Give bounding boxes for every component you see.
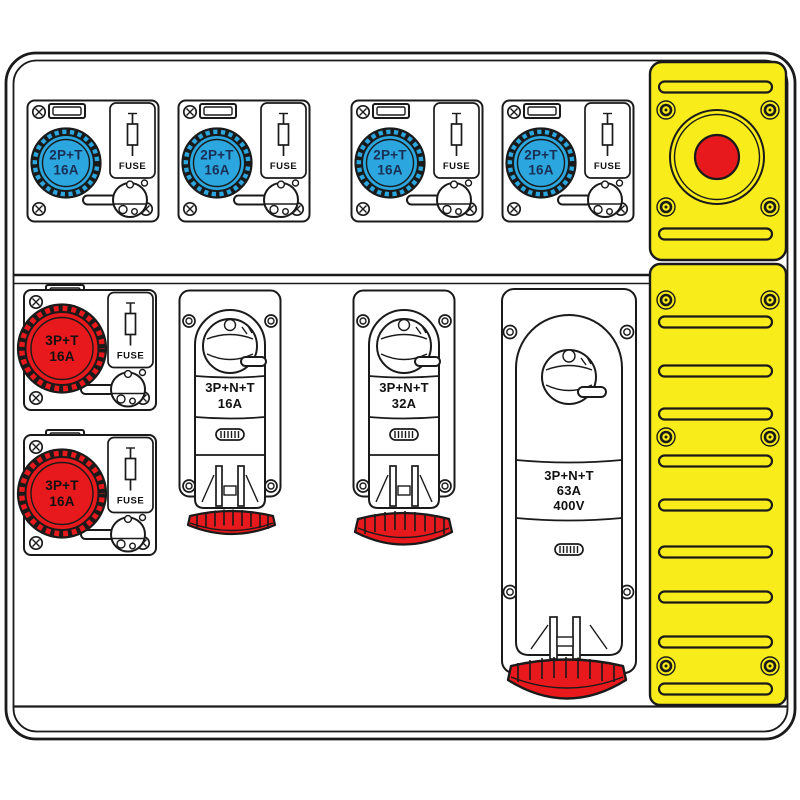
socket-type-label: 3P+T	[45, 333, 79, 348]
fuse-holder[interactable]: FUSE	[108, 438, 153, 513]
indicator-dot	[140, 370, 146, 376]
socket-rating-label: 63A	[557, 483, 582, 498]
socket-type-label: 3P+N+T	[205, 380, 255, 395]
fuse-holder[interactable]: FUSE	[261, 103, 306, 178]
yellow-side-panel	[645, 58, 791, 710]
socket-unit-blue-4[interactable]: FUSE 2P+T 16A	[501, 99, 635, 223]
socket-unit-vertical-63a[interactable]: 3P+N+T 63A 400V	[500, 287, 638, 719]
socket-type-label: 2P+T	[49, 148, 83, 163]
vent-grille	[216, 429, 244, 440]
socket-type-label: 3P+N+T	[544, 468, 594, 483]
socket-rating-label: 16A	[49, 349, 74, 364]
socket-rating-label: 16A	[528, 163, 553, 178]
socket-unit-vertical-16a[interactable]: 3P+N+T 16A	[178, 289, 282, 561]
indicator-dot	[466, 180, 472, 186]
fuse-symbol	[279, 124, 289, 145]
socket-voltage-label: 400V	[553, 498, 584, 513]
switch-handle[interactable]	[241, 357, 266, 366]
switch-handle[interactable]	[415, 357, 440, 366]
indicator-dot	[142, 180, 148, 186]
vent-grille	[390, 429, 418, 440]
cee-socket-red[interactable]: 3P+T 16A	[18, 305, 106, 393]
socket-rating-label: 16A	[53, 163, 78, 178]
socket-type-label: 2P+T	[373, 148, 407, 163]
indicator-dot	[293, 180, 299, 186]
protective-cap-red[interactable]	[355, 511, 452, 545]
socket-unit-red-2[interactable]: FUSE 3P+T 16A	[16, 429, 158, 559]
socket-rating-label: 16A	[377, 163, 402, 178]
fuse-label: FUSE	[117, 351, 144, 362]
fuse-holder[interactable]: FUSE	[434, 103, 479, 178]
fuse-holder[interactable]: FUSE	[108, 293, 153, 368]
fuse-symbol	[603, 124, 613, 145]
socket-type-label: 2P+T	[524, 148, 558, 163]
socket-type-label: 2P+T	[200, 148, 234, 163]
fuse-label: FUSE	[443, 161, 470, 172]
vent-grille	[555, 544, 583, 555]
socket-unit-vertical-32a[interactable]: 3P+N+T 32A	[352, 289, 456, 561]
fuse-symbol	[126, 314, 136, 335]
socket-rating-label: 16A	[204, 163, 229, 178]
fuse-label: FUSE	[117, 496, 144, 507]
socket-unit-blue-3[interactable]: FUSE 2P+T 16A	[350, 99, 484, 223]
socket-unit-red-1[interactable]: FUSE 3P+T 16A	[16, 284, 158, 414]
switch-handle[interactable]	[578, 387, 606, 397]
socket-type-label: 3P+N+T	[379, 380, 429, 395]
fuse-holder[interactable]: FUSE	[585, 103, 630, 178]
emergency-stop-button[interactable]	[695, 135, 739, 179]
socket-rating-label: 16A	[218, 396, 243, 411]
protective-cap-red[interactable]	[508, 657, 626, 699]
fuse-symbol	[126, 459, 136, 480]
fuse-label: FUSE	[119, 161, 146, 172]
fuse-symbol	[128, 124, 138, 145]
fuse-label: FUSE	[594, 161, 621, 172]
indicator-dot	[617, 180, 623, 186]
socket-rating-label: 32A	[392, 396, 417, 411]
socket-rating-label: 16A	[49, 494, 74, 509]
socket-unit-blue-2[interactable]: FUSE 2P+T 16A	[177, 99, 311, 223]
fuse-label: FUSE	[270, 161, 297, 172]
fuse-symbol	[452, 124, 462, 145]
cee-socket-red[interactable]: 3P+T 16A	[18, 450, 106, 538]
indicator-dot	[140, 515, 146, 521]
protective-cap-red[interactable]	[188, 510, 275, 535]
distribution-board-illustration: FUSE 2P+T 16A	[0, 0, 800, 800]
fuse-holder[interactable]: FUSE	[110, 103, 155, 178]
socket-type-label: 3P+T	[45, 478, 79, 493]
socket-unit-blue-1[interactable]: FUSE 2P+T 16A	[26, 99, 160, 223]
